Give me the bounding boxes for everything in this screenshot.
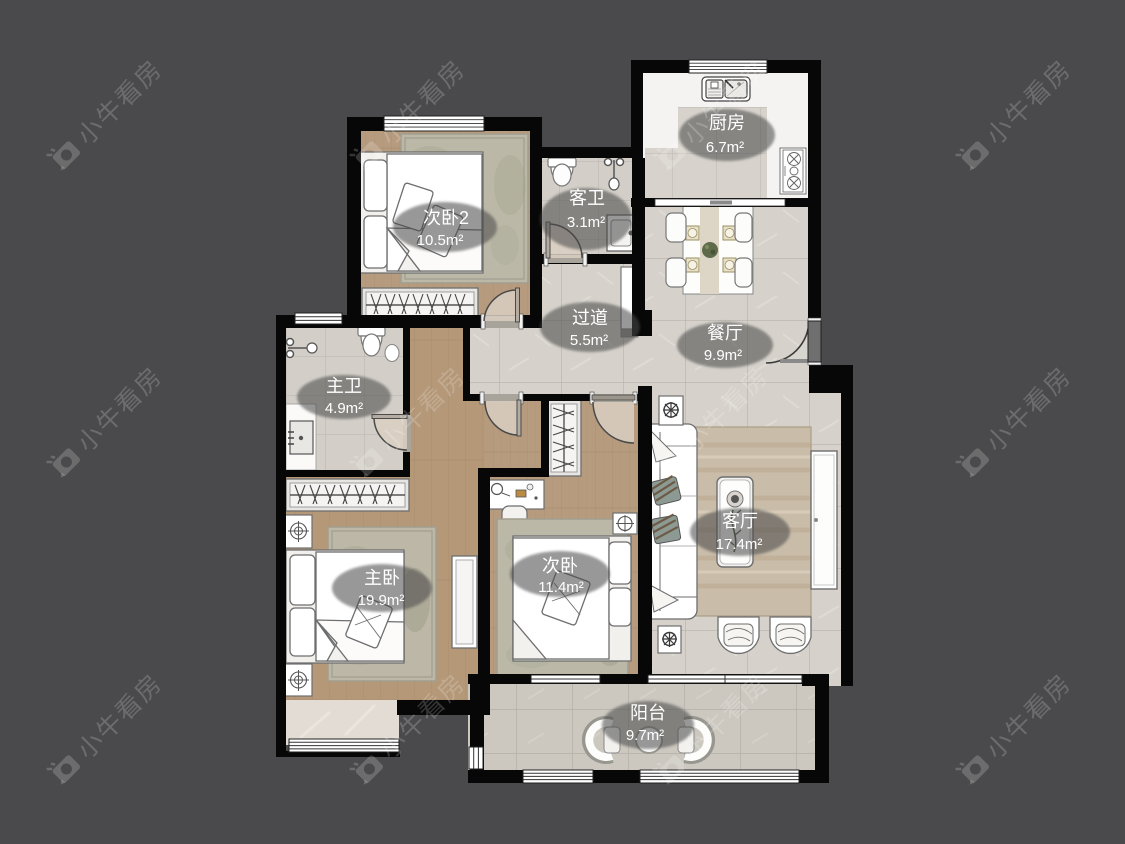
svg-text:餐厅: 餐厅 <box>707 323 743 343</box>
svg-text:次卧2: 次卧2 <box>423 208 469 228</box>
svg-text:客卫: 客卫 <box>569 188 605 208</box>
svg-text:19.9m²: 19.9m² <box>358 592 405 609</box>
svg-text:主卫: 主卫 <box>326 376 362 396</box>
svg-text:9.9m²: 9.9m² <box>704 347 742 364</box>
svg-text:阳台: 阳台 <box>630 703 666 723</box>
svg-text:11.4m²: 11.4m² <box>538 579 584 596</box>
svg-text:客厅: 客厅 <box>722 511 758 531</box>
svg-text:5.5m²: 5.5m² <box>570 332 608 349</box>
svg-text:9.7m²: 9.7m² <box>626 727 664 744</box>
svg-text:次卧: 次卧 <box>542 556 578 576</box>
svg-text:3.1m²: 3.1m² <box>567 214 605 231</box>
svg-text:6.7m²: 6.7m² <box>706 139 744 156</box>
svg-text:4.9m²: 4.9m² <box>325 400 363 417</box>
svg-text:过道: 过道 <box>572 308 608 328</box>
svg-text:厨房: 厨房 <box>709 113 745 133</box>
svg-text:10.5m²: 10.5m² <box>417 232 464 249</box>
svg-text:主卧: 主卧 <box>364 568 400 588</box>
svg-text:17.4m²: 17.4m² <box>716 536 763 553</box>
